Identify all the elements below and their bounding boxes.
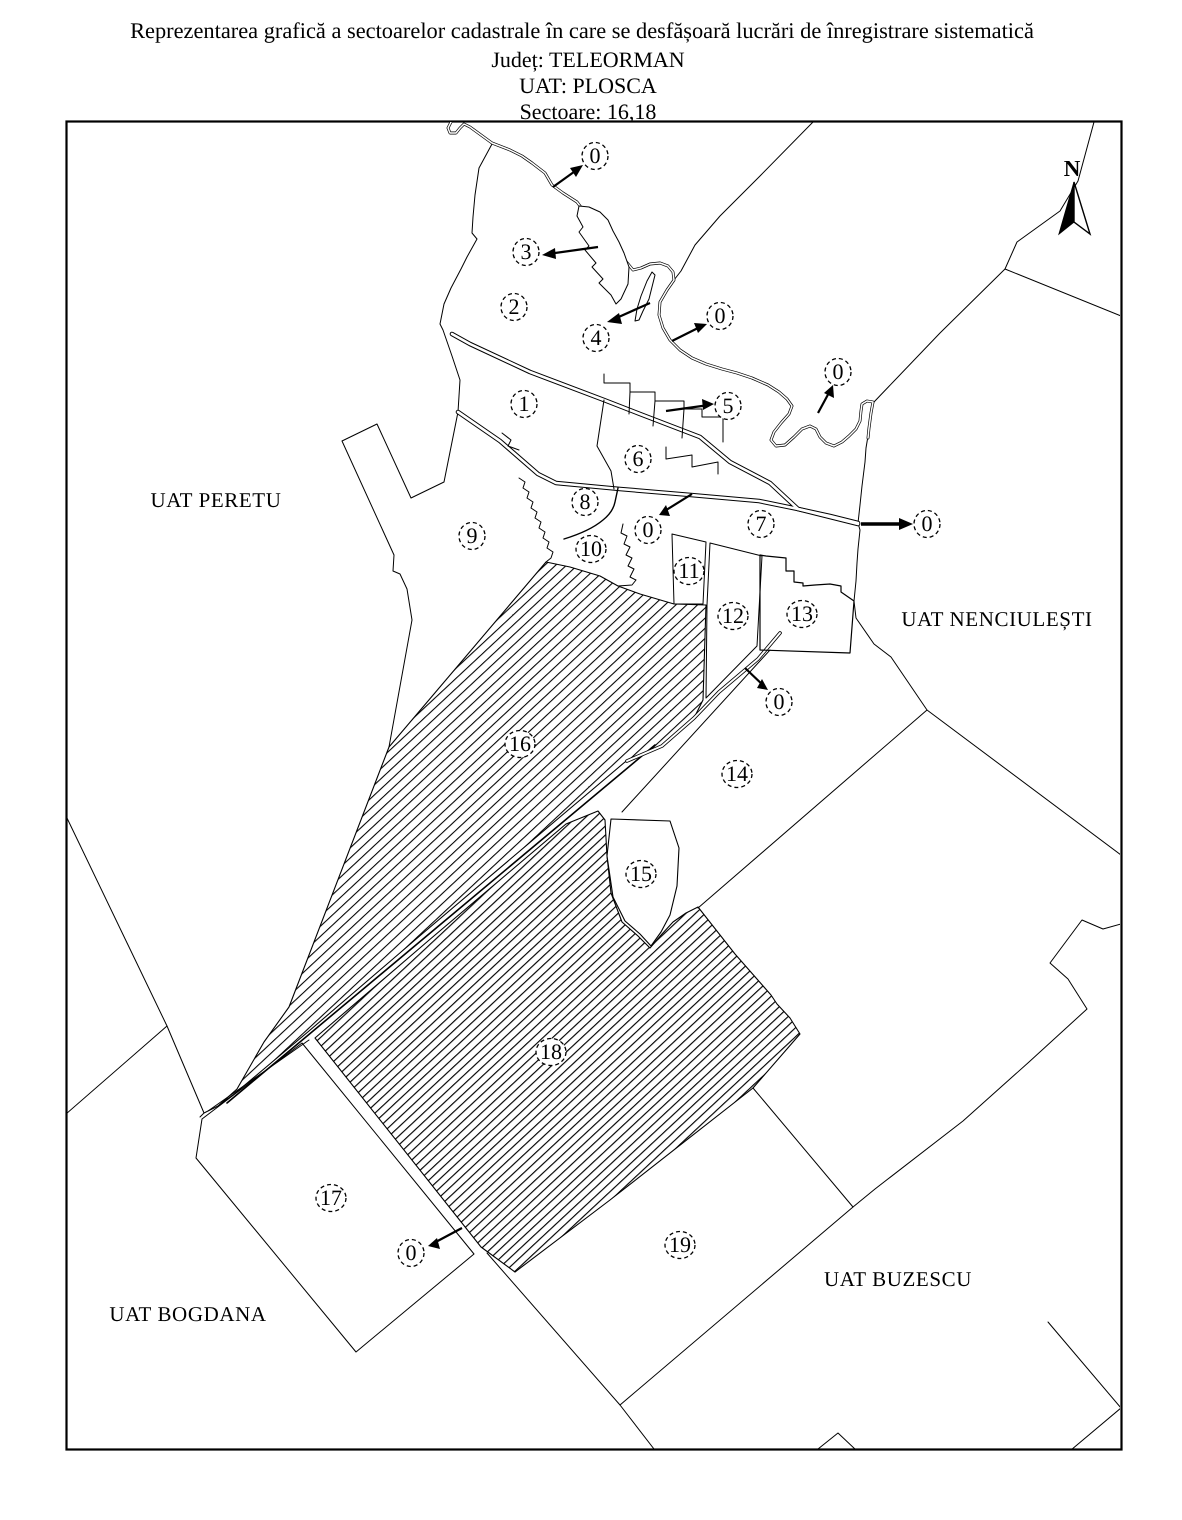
svg-text:19: 19 — [669, 1232, 691, 1257]
svg-text:10: 10 — [580, 536, 602, 561]
svg-text:UAT BUZESCU: UAT BUZESCU — [824, 1267, 972, 1291]
svg-text:13: 13 — [791, 601, 813, 626]
svg-text:N: N — [1064, 156, 1081, 181]
svg-text:15: 15 — [630, 861, 652, 886]
svg-text:0: 0 — [643, 517, 654, 542]
svg-text:0: 0 — [774, 689, 785, 714]
svg-text:2: 2 — [509, 294, 520, 319]
svg-text:UAT BOGDANA: UAT BOGDANA — [109, 1302, 267, 1326]
svg-text:Sectoare: 16,18: Sectoare: 16,18 — [520, 99, 657, 124]
svg-text:1: 1 — [519, 391, 530, 416]
svg-text:16: 16 — [509, 731, 531, 756]
svg-text:3: 3 — [521, 239, 532, 264]
svg-text:6: 6 — [633, 446, 644, 471]
svg-text:8: 8 — [580, 489, 591, 514]
svg-text:18: 18 — [540, 1039, 562, 1064]
svg-text:UAT: PLOSCA: UAT: PLOSCA — [519, 73, 657, 98]
svg-text:UAT PERETU: UAT PERETU — [150, 488, 281, 512]
svg-text:0: 0 — [406, 1240, 417, 1265]
svg-text:4: 4 — [591, 325, 602, 350]
svg-text:5: 5 — [723, 393, 734, 418]
svg-text:12: 12 — [722, 603, 744, 628]
svg-text:Reprezentarea grafică a sectoa: Reprezentarea grafică a sectoarelor cada… — [130, 18, 1034, 43]
svg-text:9: 9 — [467, 523, 478, 548]
svg-text:0: 0 — [590, 143, 601, 168]
svg-text:0: 0 — [922, 511, 933, 536]
svg-text:7: 7 — [756, 511, 767, 536]
svg-text:17: 17 — [320, 1185, 342, 1210]
svg-text:UAT NENCIULEȘTI: UAT NENCIULEȘTI — [901, 607, 1092, 631]
svg-text:0: 0 — [833, 359, 844, 384]
svg-text:Județ: TELEORMAN: Județ: TELEORMAN — [491, 47, 684, 72]
svg-text:11: 11 — [678, 558, 699, 583]
svg-text:0: 0 — [715, 303, 726, 328]
svg-text:14: 14 — [726, 761, 748, 786]
